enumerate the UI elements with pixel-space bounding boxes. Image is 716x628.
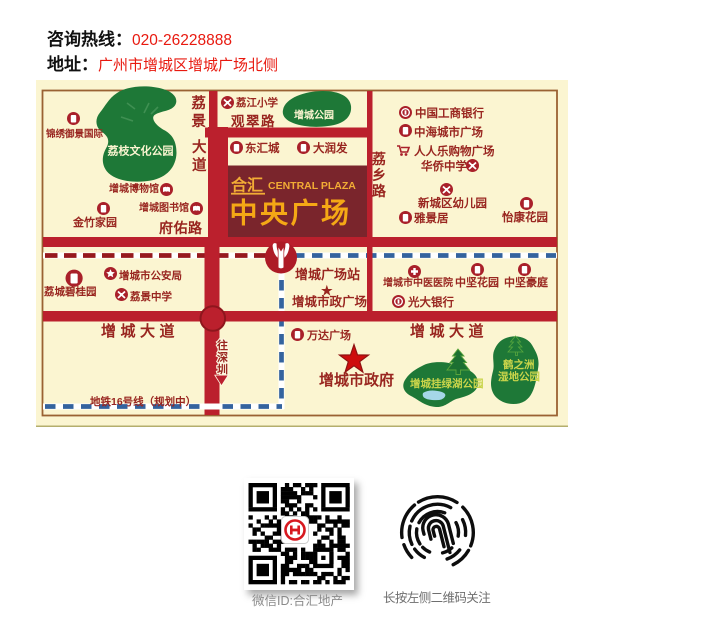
svg-text:鹤之洲: 鹤之洲 bbox=[502, 358, 535, 371]
svg-text:人人乐购物广场: 人人乐购物广场 bbox=[414, 144, 495, 158]
svg-text:增城公园: 增城公园 bbox=[294, 109, 334, 122]
svg-text:圳: 圳 bbox=[217, 362, 228, 376]
svg-text:增城市政广场: 增城市政广场 bbox=[292, 294, 367, 309]
svg-text:锦绣御景国际: 锦绣御景国际 bbox=[46, 128, 104, 140]
svg-text:景: 景 bbox=[192, 113, 207, 130]
svg-text:路: 路 bbox=[372, 183, 387, 199]
svg-text:增城大道: 增城大道 bbox=[410, 322, 488, 340]
svg-text:增城市政府: 增城市政府 bbox=[319, 371, 394, 389]
svg-text:光大银行: 光大银行 bbox=[407, 295, 454, 309]
svg-text:深: 深 bbox=[217, 350, 228, 364]
svg-text:增城市中医医院: 增城市中医医院 bbox=[383, 276, 453, 289]
svg-text:观翠路: 观翠路 bbox=[231, 113, 276, 129]
svg-text:合汇: 合汇 bbox=[231, 176, 263, 195]
svg-text:荔江小学: 荔江小学 bbox=[235, 96, 278, 109]
svg-text:中海城市广场: 中海城市广场 bbox=[414, 125, 483, 139]
svg-text:CENTRAL PLAZA: CENTRAL PLAZA bbox=[268, 180, 356, 192]
svg-text:中国工商银行: 中国工商银行 bbox=[415, 106, 484, 120]
svg-text:雅景居: 雅景居 bbox=[413, 211, 449, 225]
svg-text:中坚花园: 中坚花园 bbox=[455, 275, 499, 289]
svg-text:万达广场: 万达广场 bbox=[306, 328, 351, 342]
svg-text:大润发: 大润发 bbox=[313, 141, 348, 155]
svg-text:荔城碧桂园: 荔城碧桂园 bbox=[43, 285, 97, 298]
svg-text:道: 道 bbox=[192, 156, 207, 174]
svg-text:金竹家园: 金竹家园 bbox=[72, 215, 117, 229]
svg-text:中央广场: 中央广场 bbox=[230, 198, 352, 229]
svg-text:增城图书馆: 增城图书馆 bbox=[139, 201, 189, 214]
svg-text:增城大道: 增城大道 bbox=[101, 322, 179, 340]
svg-text:怡康花园: 怡康花园 bbox=[502, 210, 548, 224]
svg-text:往: 往 bbox=[217, 338, 228, 352]
svg-text:增城挂绿湖公园: 增城挂绿湖公园 bbox=[410, 377, 484, 390]
svg-text:地铁16号线（规划中）: 地铁16号线（规划中） bbox=[90, 395, 196, 408]
svg-text:府佑路: 府佑路 bbox=[159, 220, 203, 236]
svg-text:增城市公安局: 增城市公安局 bbox=[119, 269, 182, 282]
svg-text:湿地公园: 湿地公园 bbox=[498, 370, 540, 383]
svg-text:增城广场站: 增城广场站 bbox=[295, 267, 360, 282]
svg-text:增城博物馆: 增城博物馆 bbox=[109, 182, 159, 195]
svg-text:新城区幼儿园: 新城区幼儿园 bbox=[418, 196, 487, 210]
svg-text:荔景中学: 荔景中学 bbox=[129, 290, 172, 303]
svg-text:大: 大 bbox=[192, 138, 207, 156]
svg-text:荔枝文化公园: 荔枝文化公园 bbox=[107, 144, 174, 158]
svg-text:荔: 荔 bbox=[191, 94, 207, 112]
svg-text:乡: 乡 bbox=[372, 167, 386, 183]
svg-text:华侨中学: 华侨中学 bbox=[421, 159, 467, 173]
svg-text:中坚豪庭: 中坚豪庭 bbox=[504, 275, 548, 289]
svg-text:东汇城: 东汇城 bbox=[245, 141, 280, 155]
svg-text:荔: 荔 bbox=[371, 151, 386, 167]
